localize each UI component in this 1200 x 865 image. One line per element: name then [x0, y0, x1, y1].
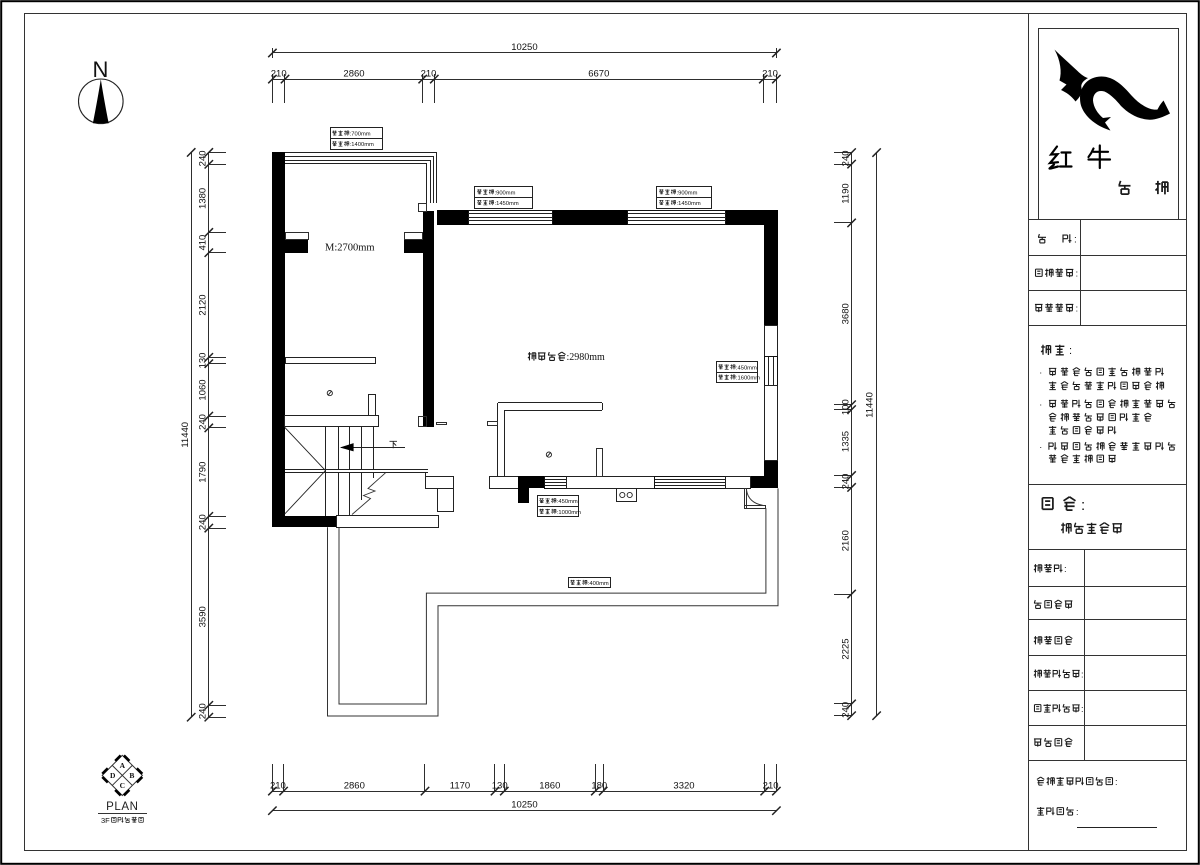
svg-text:410: 410	[197, 235, 208, 251]
svg-text:240: 240	[197, 514, 208, 530]
svg-text:240: 240	[840, 150, 851, 166]
svg-text::: :	[1074, 235, 1077, 246]
svg-text:240: 240	[197, 703, 208, 719]
svg-text:6670: 6670	[588, 69, 609, 80]
svg-text:2225: 2225	[840, 638, 851, 659]
svg-text:3680: 3680	[840, 303, 851, 324]
svg-text:210: 210	[763, 780, 779, 791]
svg-text:1335: 1335	[840, 431, 851, 452]
svg-text:N: N	[93, 57, 109, 82]
svg-text::: :	[1076, 269, 1079, 280]
svg-text:B: B	[129, 771, 134, 780]
svg-text::450mm: :450mm	[736, 365, 757, 371]
svg-text:11440: 11440	[180, 422, 191, 448]
svg-text:130: 130	[197, 353, 208, 369]
svg-text::1600mm: :1600mm	[736, 376, 760, 382]
svg-text:240: 240	[840, 702, 851, 718]
svg-text:10250: 10250	[511, 800, 537, 811]
svg-text:210: 210	[270, 780, 286, 791]
svg-text::: :	[1069, 345, 1072, 357]
svg-text::900mm: :900mm	[677, 190, 698, 196]
svg-text::: :	[1064, 564, 1067, 575]
svg-text:100: 100	[840, 399, 851, 415]
svg-text:180: 180	[591, 780, 607, 791]
svg-text:1380: 1380	[197, 188, 208, 209]
svg-text::: :	[1081, 497, 1085, 514]
svg-text::: :	[1081, 704, 1084, 714]
svg-text:240: 240	[840, 474, 851, 490]
svg-text:M:2700mm: M:2700mm	[325, 243, 375, 254]
svg-text::450mm: :450mm	[557, 499, 578, 505]
svg-text::700mm: :700mm	[350, 132, 371, 138]
svg-text:3590: 3590	[197, 606, 208, 627]
svg-text:1790: 1790	[197, 462, 208, 483]
svg-text:210: 210	[421, 69, 437, 80]
svg-text:1190: 1190	[840, 183, 851, 203]
svg-text:240: 240	[197, 414, 208, 430]
svg-text:130: 130	[492, 780, 508, 791]
svg-text:.: .	[1040, 440, 1043, 450]
svg-text:210: 210	[762, 69, 778, 80]
svg-text:D: D	[110, 771, 116, 780]
svg-text::1400mm: :1400mm	[350, 142, 374, 148]
svg-text:3320: 3320	[673, 780, 694, 791]
svg-text::: :	[1115, 777, 1118, 787]
svg-text:C: C	[120, 781, 125, 790]
svg-text::: :	[1076, 807, 1079, 817]
svg-text:2860: 2860	[344, 780, 365, 791]
svg-text:2120: 2120	[197, 294, 208, 315]
svg-text:11440: 11440	[865, 392, 876, 418]
svg-text:.: .	[1040, 398, 1043, 408]
svg-text::900mm: :900mm	[495, 190, 516, 196]
svg-text::1000mm: :1000mm	[557, 510, 581, 516]
svg-text::: :	[1076, 304, 1079, 315]
svg-text:210: 210	[271, 69, 287, 80]
svg-text::400mm: :400mm	[588, 581, 609, 587]
svg-text::2980mm: :2980mm	[567, 352, 606, 363]
svg-text:.: .	[1040, 366, 1043, 376]
svg-text:2860: 2860	[343, 69, 364, 80]
svg-text::1450mm: :1450mm	[677, 201, 701, 207]
svg-text:1060: 1060	[197, 379, 208, 400]
svg-text:1170: 1170	[450, 780, 470, 791]
svg-text:PLAN: PLAN	[106, 801, 138, 813]
svg-text:240: 240	[197, 150, 208, 166]
svg-text::1450mm: :1450mm	[495, 201, 519, 207]
svg-text:10250: 10250	[511, 42, 537, 53]
svg-text:1860: 1860	[539, 780, 560, 791]
svg-text:A: A	[120, 761, 126, 770]
svg-text:2160: 2160	[840, 530, 851, 551]
svg-text:3F: 3F	[101, 816, 110, 825]
svg-text::: :	[1081, 670, 1084, 680]
